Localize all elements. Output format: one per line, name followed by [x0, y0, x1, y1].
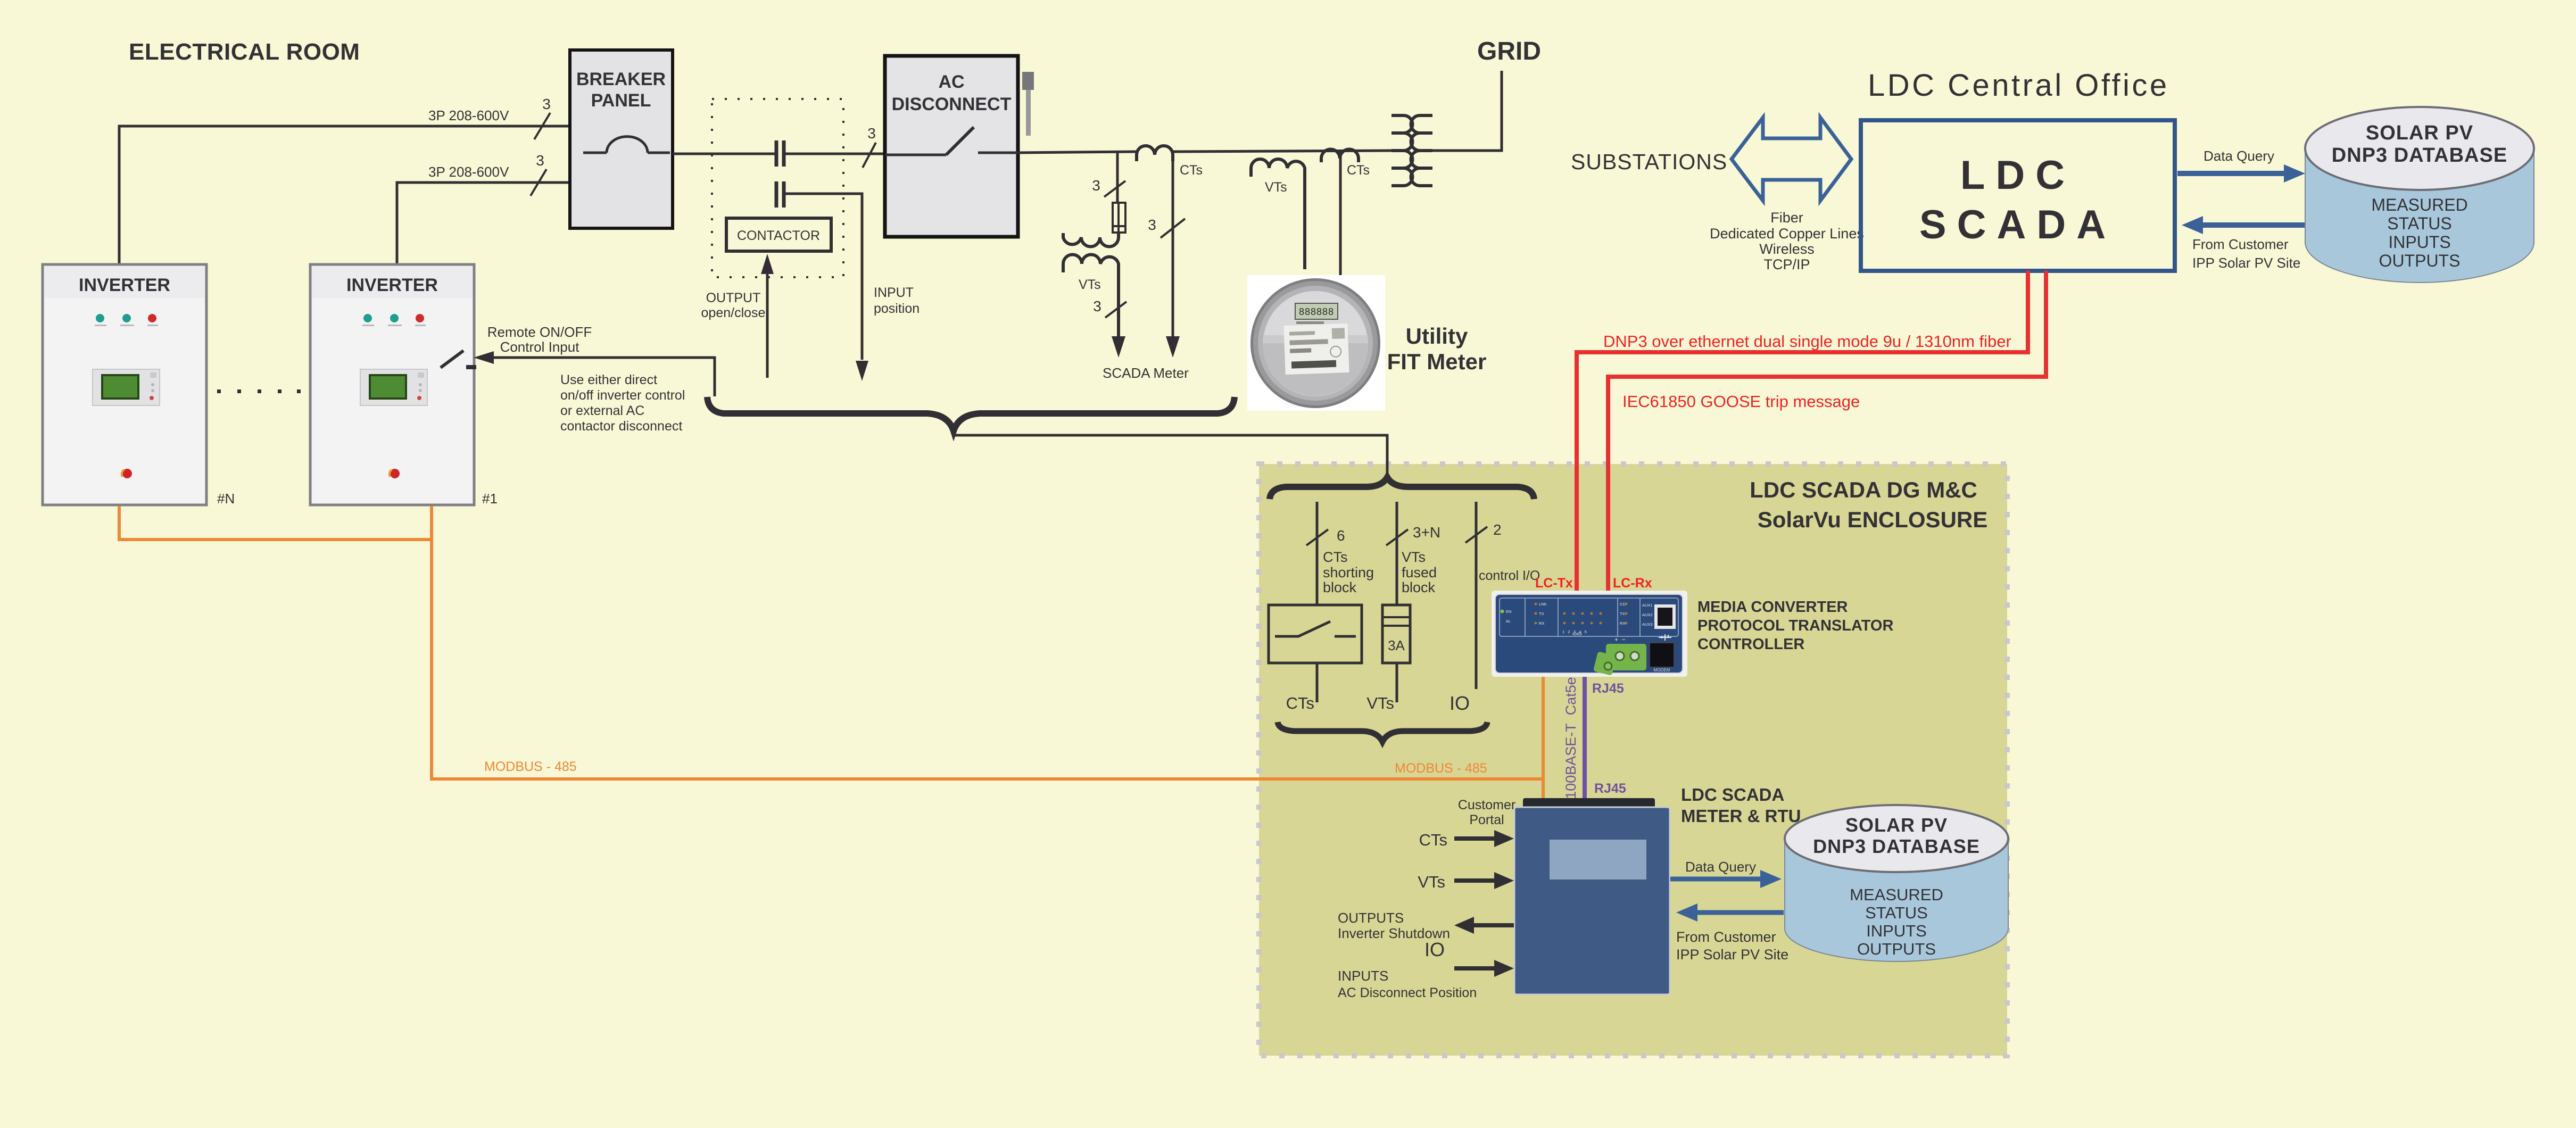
svg-text:MODBUS - 485: MODBUS - 485 [1395, 761, 1487, 776]
svg-text:VTs: VTs [1366, 694, 1394, 712]
svg-text:888888: 888888 [1299, 306, 1334, 317]
svg-text:BREAKER: BREAKER [576, 69, 666, 89]
svg-text:AL: AL [1506, 619, 1511, 624]
svg-text:ELECTRICAL ROOM: ELECTRICAL ROOM [129, 39, 360, 65]
svg-text:DNP3 DATABASE: DNP3 DATABASE [1813, 835, 1980, 857]
svg-text:EN: EN [1506, 609, 1511, 614]
svg-text:3: 3 [1092, 177, 1100, 194]
svg-text:LC-Tx: LC-Tx [1535, 576, 1573, 591]
svg-text:INPUT: INPUT [874, 285, 914, 300]
svg-text:VTs: VTs [1418, 873, 1445, 891]
svg-text:CTs: CTs [1180, 163, 1203, 178]
svg-text:PANEL: PANEL [591, 90, 651, 111]
svg-text:INPUTS: INPUTS [1338, 968, 1388, 984]
svg-text:3: 3 [536, 152, 544, 169]
svg-text:VTs: VTs [1402, 549, 1426, 565]
svg-text:TX: TX [1539, 611, 1544, 616]
svg-text:LDC SCADA DG M&C: LDC SCADA DG M&C [1750, 477, 1977, 502]
svg-text:VTs: VTs [1265, 180, 1287, 195]
svg-text:IPP Solar PV Site: IPP Solar PV Site [2192, 255, 2300, 271]
svg-text:2: 2 [1493, 521, 1502, 538]
svg-text:Customer: Customer [1458, 798, 1515, 812]
svg-text:open/close: open/close [701, 305, 766, 320]
svg-text:LDC Central Office: LDC Central Office [1868, 68, 2169, 103]
svg-text:OUTPUTS: OUTPUTS [1338, 910, 1404, 926]
svg-text:IOIOI: IOIOI [1572, 632, 1582, 636]
svg-text:contactor disconnect: contactor disconnect [560, 419, 682, 434]
svg-text:DNP3 DATABASE: DNP3 DATABASE [2332, 144, 2507, 167]
svg-text:AC: AC [938, 72, 964, 92]
svg-text:AC Disconnect Position: AC Disconnect Position [1338, 985, 1477, 1000]
svg-text:GRID: GRID [1477, 37, 1541, 65]
svg-text:FIT Meter: FIT Meter [1387, 349, 1487, 374]
svg-text:CTs: CTs [1419, 831, 1447, 849]
svg-text:DNP3 over ethernet dual single: DNP3 over ethernet dual single mode 9u /… [1603, 332, 2011, 351]
svg-text:OUTPUTS: OUTPUTS [1857, 940, 1936, 958]
svg-text:SOLAR PV: SOLAR PV [2366, 122, 2473, 144]
svg-text:Data Query: Data Query [2204, 148, 2274, 164]
svg-text:OUTPUTS: OUTPUTS [2379, 251, 2461, 270]
svg-text:IO: IO [1424, 939, 1445, 960]
svg-text:LNK: LNK [1539, 602, 1547, 607]
svg-text:SolarVu ENCLOSURE: SolarVu ENCLOSURE [1758, 507, 1988, 532]
svg-text:3P 208-600V: 3P 208-600V [428, 107, 509, 123]
svg-text:6: 6 [1337, 527, 1345, 544]
svg-text:or external AC: or external AC [560, 403, 644, 418]
svg-text:fused: fused [1402, 565, 1437, 580]
svg-text:RX: RX [1620, 621, 1625, 626]
svg-text:+ −: + − [1614, 636, 1626, 643]
svg-text:METER & RTU: METER & RTU [1681, 806, 1801, 826]
svg-text:INPUTS: INPUTS [2388, 233, 2450, 252]
svg-text:VTs: VTs [1079, 277, 1101, 292]
svg-text:control I/O: control I/O [1479, 568, 1540, 583]
svg-text:3: 3 [542, 96, 551, 112]
svg-text:100BASE-T Cat5e: 100BASE-T Cat5e [1563, 677, 1579, 799]
svg-text:Portal: Portal [1469, 812, 1504, 827]
svg-text:SCADA Meter: SCADA Meter [1103, 365, 1189, 381]
svg-text:IO: IO [1449, 692, 1470, 714]
svg-text:block: block [1402, 579, 1436, 595]
svg-text:Control Input: Control Input [500, 339, 580, 355]
svg-text:3P 208-600V: 3P 208-600V [428, 164, 509, 180]
svg-text:#N: #N [217, 491, 235, 507]
svg-text:SCADA: SCADA [1919, 202, 2116, 247]
svg-text:on/off inverter control: on/off inverter control [560, 388, 685, 403]
svg-text:INPUTS: INPUTS [1866, 922, 1927, 940]
svg-text:MEDIA CONVERTER: MEDIA CONVERTER [1697, 599, 1848, 616]
svg-text:Remote ON/OFF: Remote ON/OFF [487, 324, 592, 340]
svg-text:LC-Rx: LC-Rx [1613, 576, 1652, 591]
svg-text:3: 3 [1148, 217, 1156, 233]
svg-text:From Customer: From Customer [1676, 929, 1776, 945]
svg-text:3: 3 [867, 125, 876, 142]
svg-text:MODEM: MODEM [1654, 668, 1670, 673]
svg-text:MEASURED: MEASURED [1850, 885, 1943, 904]
svg-text:AUX1: AUX1 [1642, 603, 1653, 608]
svg-text:3: 3 [1093, 298, 1101, 314]
svg-text:PROTOCOL TRANSLATOR: PROTOCOL TRANSLATOR [1697, 617, 1893, 634]
svg-text:LDC: LDC [1960, 153, 2075, 198]
svg-text:INVERTER: INVERTER [79, 275, 170, 295]
svg-text:LDC SCADA: LDC SCADA [1681, 785, 1784, 804]
svg-text:block: block [1323, 579, 1357, 595]
svg-text:MEASURED: MEASURED [2371, 195, 2467, 214]
svg-text:#1: #1 [482, 491, 498, 507]
svg-text:TX: TX [1620, 611, 1625, 616]
svg-text:CTs: CTs [1347, 163, 1370, 178]
svg-text:DISCONNECT: DISCONNECT [892, 94, 1012, 114]
svg-text:shorting: shorting [1323, 565, 1374, 580]
svg-text:SOLAR PV: SOLAR PV [1845, 814, 1948, 836]
svg-text:INVERTER: INVERTER [346, 275, 438, 295]
svg-text:CTs: CTs [1286, 694, 1314, 712]
svg-text:STATUS: STATUS [2387, 214, 2451, 233]
svg-text:Wireless: Wireless [1759, 241, 1815, 257]
svg-text:CONTROLLER: CONTROLLER [1697, 636, 1804, 653]
svg-text:RJ45: RJ45 [1594, 781, 1626, 796]
svg-text:RJ45: RJ45 [1592, 681, 1624, 696]
svg-text:3+N: 3+N [1413, 524, 1440, 541]
svg-text:OUTPUT: OUTPUT [706, 291, 761, 305]
svg-text:AUX3: AUX3 [1642, 622, 1653, 627]
svg-text:AUX2: AUX2 [1642, 612, 1653, 617]
svg-text:IEC61850 GOOSE trip message: IEC61850 GOOSE trip message [1622, 392, 1860, 411]
svg-text:3A: 3A [1388, 637, 1405, 653]
svg-text:Data Query: Data Query [1685, 859, 1756, 875]
svg-text:STATUS: STATUS [1865, 903, 1928, 922]
svg-text:Use either direct: Use either direct [560, 372, 657, 387]
svg-text:position: position [874, 301, 920, 316]
svg-text:TCP/IP: TCP/IP [1763, 256, 1810, 272]
svg-text:MODBUS - 485: MODBUS - 485 [484, 759, 577, 774]
svg-text:CONTACTOR: CONTACTOR [737, 228, 820, 243]
svg-text:Utility: Utility [1406, 324, 1468, 349]
svg-text:From Customer: From Customer [2192, 236, 2289, 252]
svg-text:RX: RX [1539, 621, 1544, 626]
svg-text:Dedicated Copper Lines: Dedicated Copper Lines [1710, 226, 1864, 242]
svg-text:SUBSTATIONS: SUBSTATIONS [1571, 150, 1727, 174]
svg-text:IPP Solar PV Site: IPP Solar PV Site [1676, 947, 1788, 963]
svg-text:CTs: CTs [1323, 549, 1348, 565]
svg-text:Fiber: Fiber [1770, 210, 1803, 226]
